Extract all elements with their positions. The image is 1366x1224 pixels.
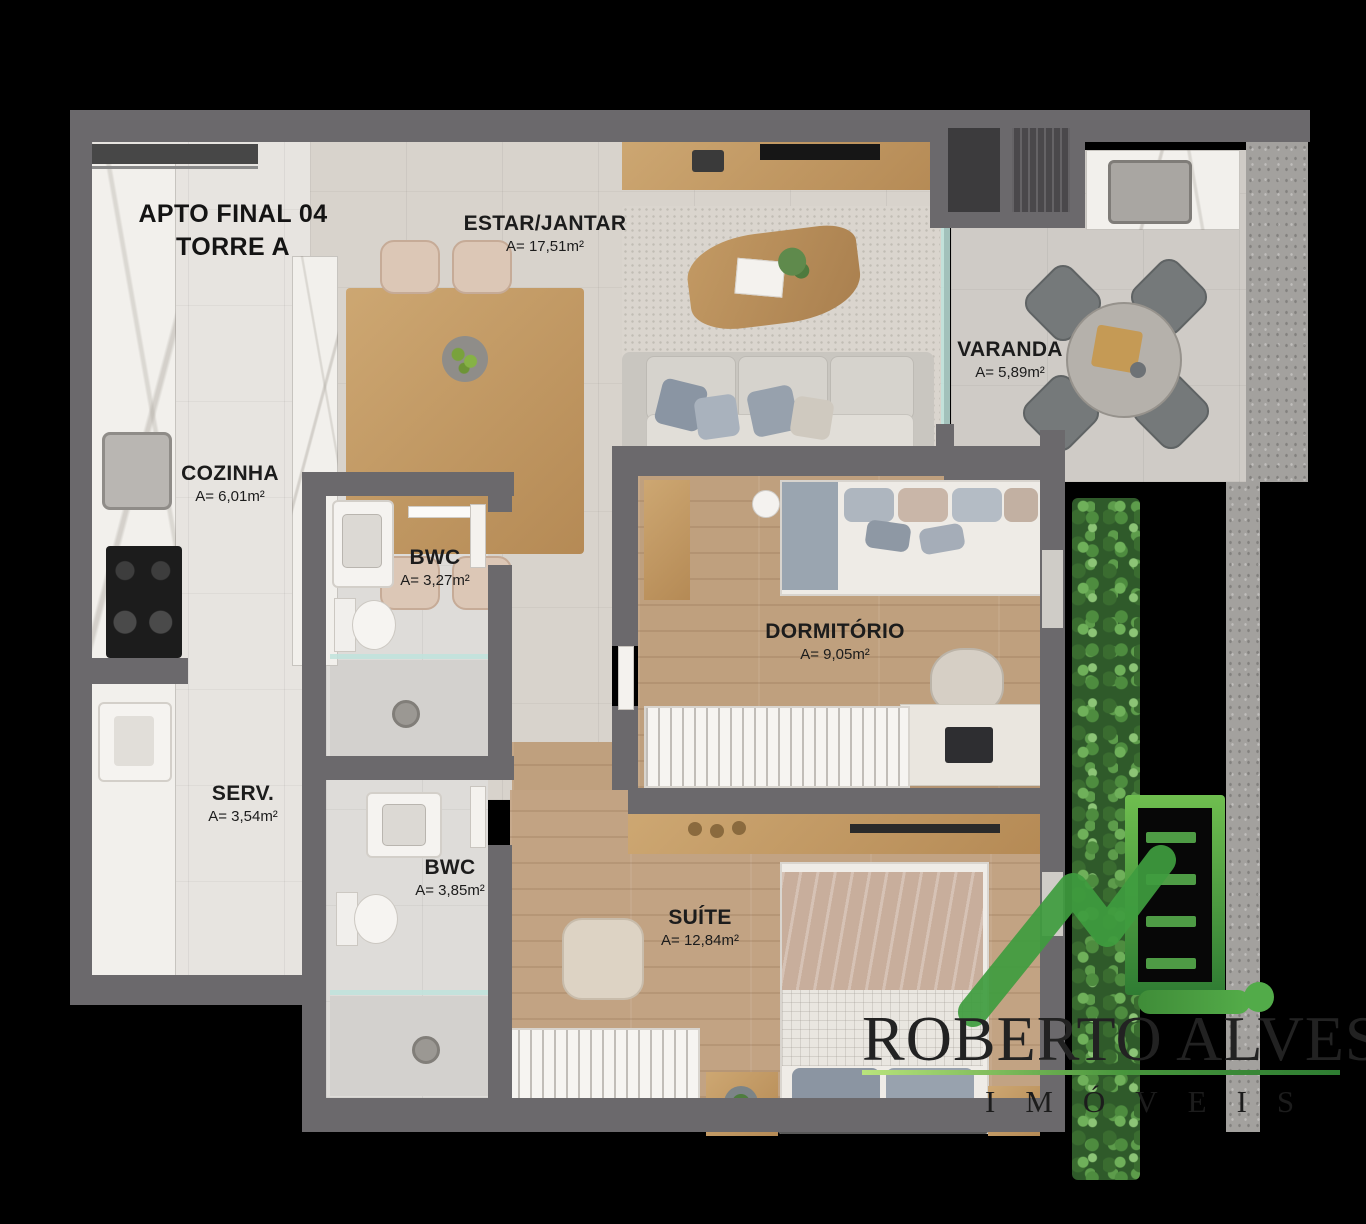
room-label-estar-jantar: ESTAR/JANTAR A= 17,51m² bbox=[445, 212, 645, 255]
bwc2-door bbox=[470, 786, 486, 848]
dorm-side-panel bbox=[644, 480, 690, 600]
wall-bwc1-top bbox=[302, 472, 514, 496]
room-area: A= 9,05m² bbox=[740, 646, 930, 663]
bwc2-sink-counter bbox=[366, 792, 442, 858]
tv-cabinet-decor bbox=[692, 150, 724, 172]
apartment-title: APTO FINAL 04 TORRE A bbox=[105, 198, 361, 264]
suite-closet bbox=[504, 1028, 700, 1104]
wall-bwc-mid bbox=[302, 756, 514, 780]
bed-blanket bbox=[782, 872, 983, 990]
bed-pillow bbox=[864, 519, 911, 553]
sofa-cushion bbox=[830, 356, 914, 420]
wall-bwc-right-b bbox=[488, 565, 512, 760]
kitchen-top-shelf bbox=[92, 144, 258, 164]
dorm-desk bbox=[900, 704, 1042, 786]
dining-chair bbox=[380, 240, 440, 294]
floor-corridor bbox=[512, 742, 612, 792]
room-name: DORMITÓRIO bbox=[740, 620, 930, 644]
varanda-sink bbox=[1108, 160, 1192, 224]
sideboard-decor-dots bbox=[688, 822, 702, 836]
room-name: COZINHA bbox=[150, 462, 310, 486]
exterior-concrete-wall-top bbox=[1246, 142, 1308, 482]
dorm-wardrobe bbox=[644, 706, 910, 788]
room-name: BWC bbox=[365, 546, 505, 570]
dorm-door bbox=[618, 646, 634, 710]
bwc1-shower-glass bbox=[330, 654, 488, 659]
kitchen-rail bbox=[92, 166, 258, 169]
bwc2-sink-basin bbox=[382, 804, 426, 846]
shaft-recess bbox=[948, 128, 1000, 212]
wall-kitchen-service-divider bbox=[70, 658, 188, 684]
brand-subtitle: IMÓVEIS bbox=[985, 1084, 1324, 1120]
room-label-bwc-2: BWC A= 3,85m² bbox=[375, 856, 525, 899]
room-label-dormitorio: DORMITÓRIO A= 9,05m² bbox=[740, 620, 930, 663]
dorm-window bbox=[1042, 550, 1063, 628]
wall-dorm-left-b bbox=[612, 706, 638, 790]
bed-pillow bbox=[952, 488, 1002, 522]
room-name: ESTAR/JANTAR bbox=[445, 212, 645, 236]
room-area: A= 6,01m² bbox=[150, 488, 310, 505]
bed-throw bbox=[782, 482, 838, 590]
room-area: A= 3,85m² bbox=[375, 882, 525, 899]
room-name: VARANDA bbox=[930, 338, 1090, 362]
wall-service-bottom bbox=[70, 975, 312, 1005]
wall-varanda-bottom bbox=[944, 452, 1065, 480]
throw-pillow bbox=[789, 395, 835, 441]
wall-bwc-right-a bbox=[488, 472, 512, 512]
service-tank-sink bbox=[98, 702, 172, 782]
brand-divider-line bbox=[862, 1070, 1340, 1075]
wall-left bbox=[70, 110, 92, 1005]
wall-dorm-left-a bbox=[612, 446, 638, 646]
bwc1-shower-drain bbox=[392, 700, 420, 728]
room-label-serv: SERV. A= 3,54m² bbox=[163, 782, 323, 825]
bwc2-shower-glass bbox=[330, 990, 488, 995]
room-area: A= 17,51m² bbox=[445, 238, 645, 255]
room-label-cozinha: COZINHA A= 6,01m² bbox=[150, 462, 310, 505]
room-label-varanda: VARANDA A= 5,89m² bbox=[930, 338, 1090, 381]
laptop bbox=[945, 727, 993, 763]
room-name: BWC bbox=[375, 856, 525, 880]
cooktop bbox=[106, 546, 182, 658]
bed-pillow bbox=[1004, 488, 1038, 522]
wall-dorm-suite bbox=[628, 788, 1040, 814]
floor-plan-canvas: APTO FINAL 04 TORRE A ESTAR/JANTAR A= 17… bbox=[0, 0, 1366, 1224]
room-area: A= 12,84m² bbox=[620, 932, 780, 949]
fruit-bowl bbox=[442, 336, 488, 382]
shaft-recess bbox=[1012, 128, 1070, 212]
bwc2-shower-drain bbox=[412, 1036, 440, 1064]
room-area: A= 3,27m² bbox=[365, 572, 505, 589]
wall-top bbox=[70, 110, 1310, 142]
wall-bottom bbox=[302, 1098, 1065, 1132]
bwc1-toilet bbox=[352, 600, 396, 650]
dorm-ceiling-light bbox=[752, 490, 780, 518]
apartment-title-line1: APTO FINAL 04 bbox=[105, 198, 361, 231]
sideboard-decor-bar bbox=[850, 824, 1000, 833]
service-tank-basin bbox=[114, 716, 154, 766]
bwc2-toilet bbox=[354, 894, 398, 944]
bed-pillow bbox=[844, 488, 894, 522]
room-name: SUÍTE bbox=[620, 906, 780, 930]
room-name: SERV. bbox=[163, 782, 323, 806]
varanda-partition-post-bottom bbox=[936, 424, 954, 452]
brand-wordmark: ROBERTO ALVES bbox=[862, 1002, 1366, 1076]
apartment-title-line2: TORRE A bbox=[105, 231, 361, 264]
bed-pillow bbox=[918, 522, 966, 555]
throw-pillow bbox=[693, 393, 740, 440]
room-label-suite: SUÍTE A= 12,84m² bbox=[620, 906, 780, 949]
tv bbox=[760, 144, 880, 160]
bwc2-shower-area bbox=[330, 996, 488, 1096]
single-bed bbox=[780, 480, 1044, 596]
room-area: A= 5,89m² bbox=[930, 364, 1090, 381]
room-label-bwc-1: BWC A= 3,27m² bbox=[365, 546, 505, 589]
tv-cabinet bbox=[622, 134, 940, 190]
room-area: A= 3,54m² bbox=[163, 808, 323, 825]
varanda-table-cup bbox=[1130, 362, 1146, 378]
bed-pillow bbox=[898, 488, 948, 522]
